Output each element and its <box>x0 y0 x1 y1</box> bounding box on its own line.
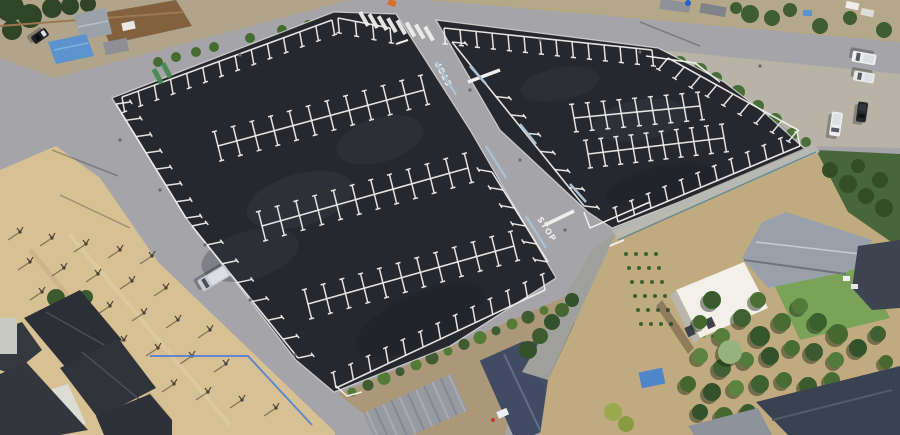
garden-tree <box>792 298 808 314</box>
sapling-base <box>96 272 99 275</box>
garden-tree <box>805 343 823 361</box>
tree <box>872 172 888 188</box>
stall-line <box>694 155 699 156</box>
veg-plant <box>640 280 644 284</box>
garden-tree <box>828 324 848 344</box>
stall-line <box>651 66 656 67</box>
veg-plant <box>633 294 637 298</box>
sapling-base <box>176 318 179 321</box>
garden-tree <box>751 375 769 393</box>
sapling-base <box>118 248 121 251</box>
vehicle-roof <box>864 74 873 82</box>
garden-tree <box>784 340 800 356</box>
manhole <box>758 64 761 67</box>
tree <box>209 42 219 52</box>
tree <box>812 18 828 34</box>
stall-line <box>603 61 608 62</box>
tree <box>555 303 569 317</box>
hedge-bush <box>801 137 811 147</box>
veg-plant <box>637 266 641 270</box>
stall-line <box>587 59 592 60</box>
stall-line <box>618 164 623 165</box>
tree <box>519 341 537 359</box>
manhole <box>518 158 521 161</box>
stall-line <box>337 32 342 33</box>
veg-plant <box>644 252 648 256</box>
veg-plant <box>646 308 650 312</box>
stall-line <box>724 151 729 152</box>
stall-line <box>709 153 714 154</box>
hedge-bush <box>363 380 374 391</box>
hedge-bush <box>474 331 487 344</box>
garden-tree <box>773 313 791 331</box>
stall-line <box>689 127 694 128</box>
tree <box>858 188 874 204</box>
manhole <box>638 50 641 53</box>
sapling-base <box>142 311 145 314</box>
garden-tree <box>750 292 766 308</box>
hedge-bush <box>396 367 405 376</box>
stall-line <box>389 42 394 43</box>
garden-tree <box>750 326 770 346</box>
stall-line <box>633 162 638 163</box>
sapling-base <box>172 382 175 385</box>
veg-plant <box>654 252 658 256</box>
stall-line <box>704 126 709 127</box>
manhole <box>248 298 251 301</box>
tree <box>783 3 797 17</box>
garden-tree <box>728 380 744 396</box>
garden-tree <box>692 404 708 420</box>
blue-tarp <box>803 10 812 16</box>
garden-tree <box>718 340 742 364</box>
garden-tree <box>733 309 751 327</box>
tree <box>171 52 181 62</box>
tree <box>730 2 742 14</box>
stall-line <box>635 64 640 65</box>
manhole <box>468 88 471 91</box>
stall-line <box>459 45 464 46</box>
sapling-base <box>40 290 43 293</box>
tree <box>764 10 780 26</box>
garden-tree <box>693 315 707 329</box>
garden-tree <box>703 383 721 401</box>
white-wall-building <box>0 318 17 354</box>
sapling-base <box>208 328 211 331</box>
stall-line <box>354 36 359 37</box>
sapling-base <box>122 338 125 341</box>
veg-plant <box>653 294 657 298</box>
sapling-base <box>108 304 111 307</box>
stall-line <box>598 138 603 139</box>
garden-tree <box>680 376 696 392</box>
yellow-green-tree <box>604 403 622 421</box>
sapling-base <box>28 260 31 263</box>
sapling-base <box>18 230 21 233</box>
stall-line <box>679 157 684 158</box>
tree <box>741 5 759 23</box>
stall-line <box>507 50 512 51</box>
tree <box>876 22 892 38</box>
veg-plant <box>650 280 654 284</box>
stall-line <box>648 160 653 161</box>
tree <box>245 33 255 43</box>
tree <box>532 328 548 344</box>
tree <box>851 159 865 173</box>
garden-tree <box>692 348 708 364</box>
hedge-bush <box>492 326 501 335</box>
stall-line <box>603 166 608 167</box>
sapling-base <box>274 406 277 409</box>
veg-plant <box>643 294 647 298</box>
white-object <box>851 284 858 289</box>
sapling-base <box>156 346 159 349</box>
tree <box>843 11 857 25</box>
sapling-base <box>224 362 227 365</box>
sapling-base <box>240 398 243 401</box>
yellow-green-tree <box>618 416 634 432</box>
sapling-base <box>130 279 133 282</box>
stall-line <box>613 136 618 137</box>
manhole <box>538 38 541 41</box>
tree <box>544 314 560 330</box>
stall-line <box>583 140 588 141</box>
stall-line <box>719 124 724 125</box>
veg-plant <box>630 280 634 284</box>
manhole <box>118 138 121 141</box>
garden-tree <box>849 339 867 357</box>
stall-line <box>523 52 528 53</box>
stall-line <box>643 133 648 134</box>
veg-plant <box>663 294 667 298</box>
manhole <box>203 243 206 246</box>
stall-line <box>619 62 624 63</box>
stall-line <box>588 167 593 168</box>
garden-tree <box>703 291 721 309</box>
stall-line <box>491 49 496 50</box>
tree <box>2 20 22 40</box>
garden-tree <box>776 372 792 388</box>
stall-line <box>539 54 544 55</box>
manhole <box>158 188 161 191</box>
veg-plant <box>647 266 651 270</box>
veg-plant <box>639 322 643 326</box>
sapling-base <box>206 390 209 393</box>
garden-tree <box>879 355 893 369</box>
stall-line <box>443 44 448 45</box>
red-object <box>491 418 495 422</box>
hedge-bush <box>522 311 535 324</box>
garden-tree <box>809 313 827 331</box>
tree <box>822 162 838 178</box>
veg-plant <box>649 322 653 326</box>
manhole <box>238 53 241 56</box>
veg-plant <box>627 266 631 270</box>
garden-tree <box>761 347 779 365</box>
stall-line <box>371 39 376 40</box>
stall-line <box>571 57 576 58</box>
manhole <box>293 353 296 356</box>
hedge-bush <box>459 339 470 350</box>
sapling-base <box>164 286 167 289</box>
vehicle-roof <box>832 114 841 126</box>
veg-plant <box>659 322 663 326</box>
road-sign <box>685 0 691 6</box>
vehicle-roof <box>859 104 867 112</box>
manhole <box>563 228 566 231</box>
stall-line <box>663 159 668 160</box>
garden-tree <box>828 352 844 368</box>
stall-line <box>659 131 664 132</box>
stall-line <box>674 129 679 130</box>
tree <box>191 47 201 57</box>
tree <box>839 175 857 193</box>
garden-tree <box>870 326 886 342</box>
tree <box>875 199 893 217</box>
aerial-photo: STOP STOP <box>0 0 900 435</box>
veg-plant <box>660 280 664 284</box>
veg-plant <box>657 266 661 270</box>
sapling-base <box>150 254 153 257</box>
white-object <box>843 276 850 281</box>
stall-line <box>475 47 480 48</box>
veg-plant <box>636 308 640 312</box>
stall-line <box>628 135 633 136</box>
hedge-bush <box>540 306 549 315</box>
aerial-photo-stage: STOP STOP <box>0 0 900 435</box>
sapling-base <box>50 236 53 239</box>
veg-plant <box>624 252 628 256</box>
stall-line <box>555 56 560 57</box>
sapling-base <box>62 266 65 269</box>
veg-plant <box>634 252 638 256</box>
hedge-bush <box>507 319 518 330</box>
sapling-base <box>84 242 87 245</box>
tree <box>565 293 579 307</box>
